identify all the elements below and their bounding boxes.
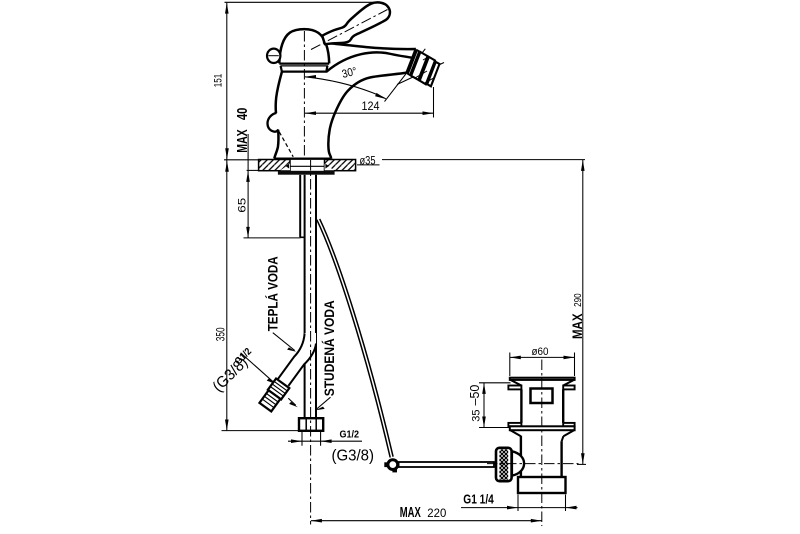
svg-text:124: 124	[362, 99, 380, 113]
svg-text:65: 65	[236, 198, 248, 213]
svg-text:G1 1/4: G1 1/4	[463, 493, 494, 507]
svg-text:290: 290	[572, 293, 584, 307]
svg-text:TEPLÁ VODA: TEPLÁ VODA	[265, 256, 281, 331]
svg-text:40: 40	[235, 108, 251, 120]
svg-text:MAX: MAX	[569, 313, 585, 339]
svg-text:35: 35	[470, 410, 482, 422]
svg-text:(G3/8): (G3/8)	[332, 447, 375, 464]
svg-text:ø60: ø60	[532, 346, 549, 358]
svg-text:–50: –50	[468, 385, 482, 406]
svg-text:ø35: ø35	[360, 155, 376, 167]
svg-text:G1/2: G1/2	[340, 429, 360, 441]
svg-text:MAX: MAX	[235, 129, 251, 153]
svg-text:220: 220	[427, 506, 446, 520]
svg-text:STUDENÁ VODA: STUDENÁ VODA	[321, 300, 337, 396]
svg-text:350: 350	[213, 327, 227, 341]
svg-text:151: 151	[212, 74, 224, 88]
svg-text:MAX: MAX	[400, 504, 421, 521]
